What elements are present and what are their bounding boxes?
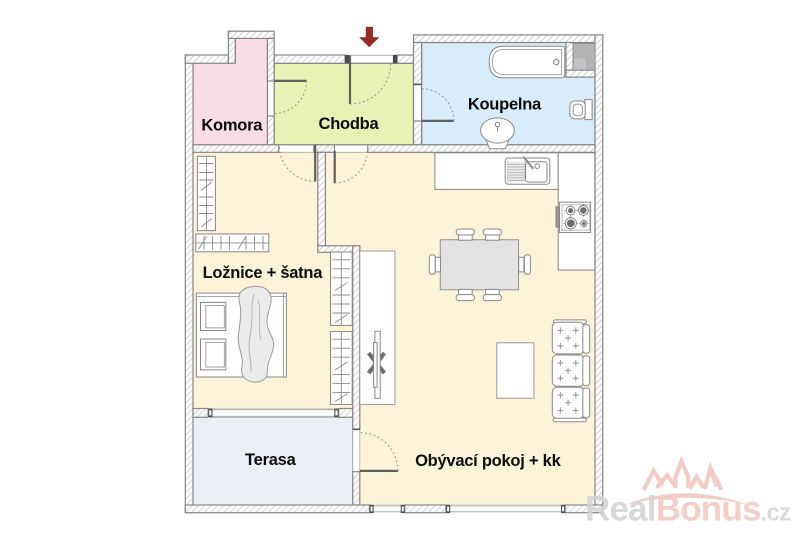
svg-text:Chodba: Chodba bbox=[319, 115, 380, 133]
svg-text:Koupelna: Koupelna bbox=[468, 95, 542, 113]
svg-text:Komora: Komora bbox=[201, 117, 263, 135]
svg-text:RealBonus.cz: RealBonus.cz bbox=[585, 490, 791, 529]
svg-text:Terasa: Terasa bbox=[245, 451, 297, 469]
svg-text:Ložnice + šatna: Ložnice + šatna bbox=[203, 264, 324, 282]
svg-text:Obývací pokoj + kk: Obývací pokoj + kk bbox=[415, 452, 562, 470]
